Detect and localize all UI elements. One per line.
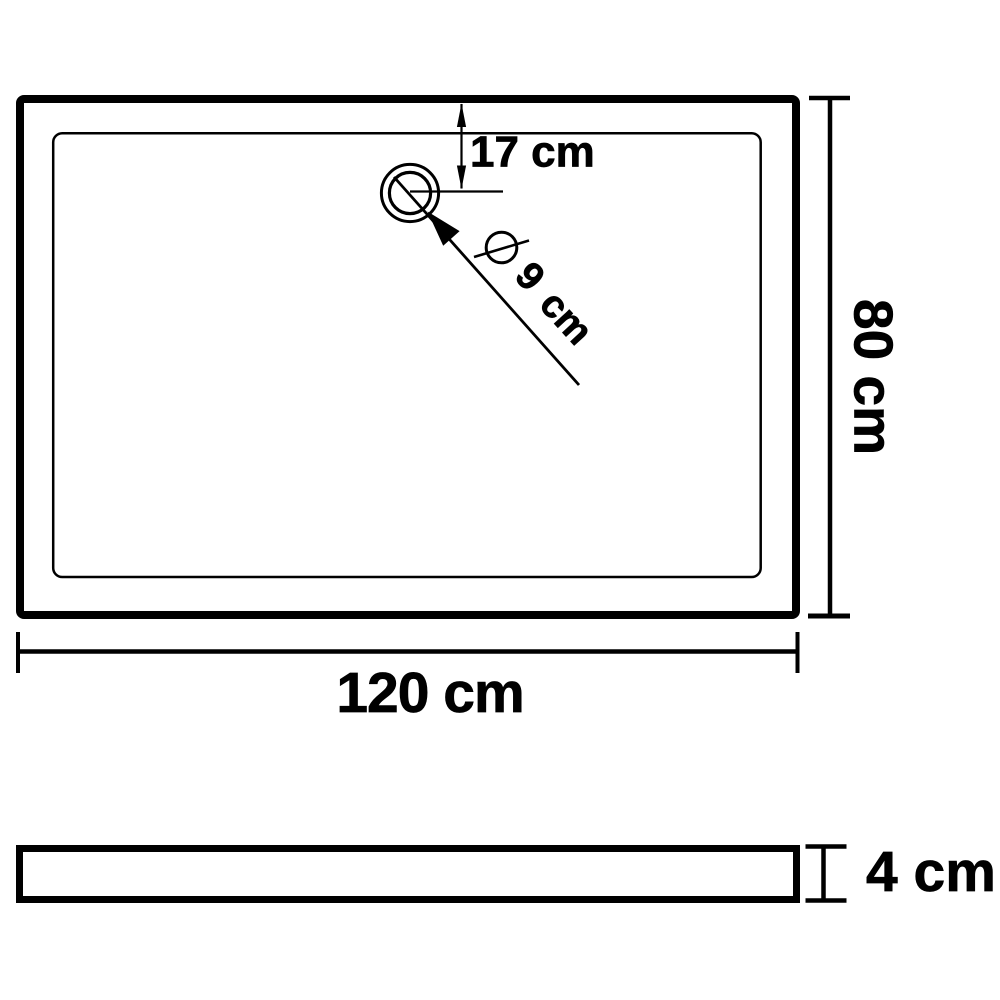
svg-text:4 cm: 4 cm — [866, 840, 996, 904]
svg-text:120 cm: 120 cm — [336, 661, 523, 725]
svg-text:80 cm: 80 cm — [843, 299, 905, 455]
svg-text:17 cm: 17 cm — [470, 127, 595, 176]
